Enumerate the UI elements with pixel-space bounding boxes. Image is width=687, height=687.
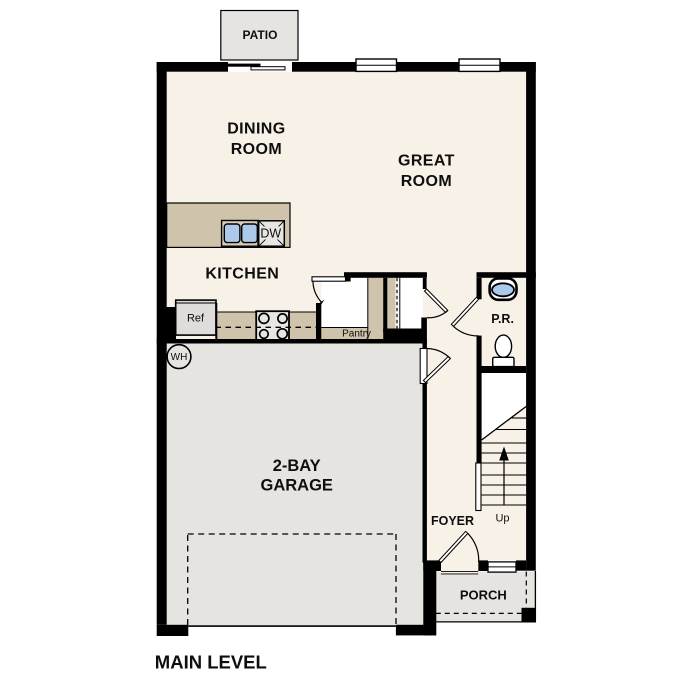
svg-text:KITCHEN: KITCHEN	[205, 266, 279, 283]
svg-text:WH: WH	[171, 352, 188, 363]
svg-text:GARAGE: GARAGE	[260, 477, 332, 495]
svg-text:Pantry: Pantry	[342, 328, 371, 339]
svg-text:ROOM: ROOM	[231, 141, 282, 158]
svg-text:ROOM: ROOM	[401, 173, 452, 190]
svg-text:PORCH: PORCH	[460, 587, 507, 602]
svg-text:PATIO: PATIO	[243, 28, 278, 42]
svg-text:2-BAY: 2-BAY	[273, 457, 321, 475]
svg-text:Up: Up	[495, 513, 509, 525]
svg-text:P.R.: P.R.	[491, 312, 514, 326]
svg-text:FOYER: FOYER	[431, 514, 474, 528]
svg-text:GREAT: GREAT	[398, 153, 455, 170]
svg-text:MAIN LEVEL: MAIN LEVEL	[155, 652, 267, 673]
svg-text:Ref: Ref	[187, 313, 205, 325]
svg-text:DINING: DINING	[227, 121, 285, 138]
svg-text:DW: DW	[260, 227, 281, 241]
